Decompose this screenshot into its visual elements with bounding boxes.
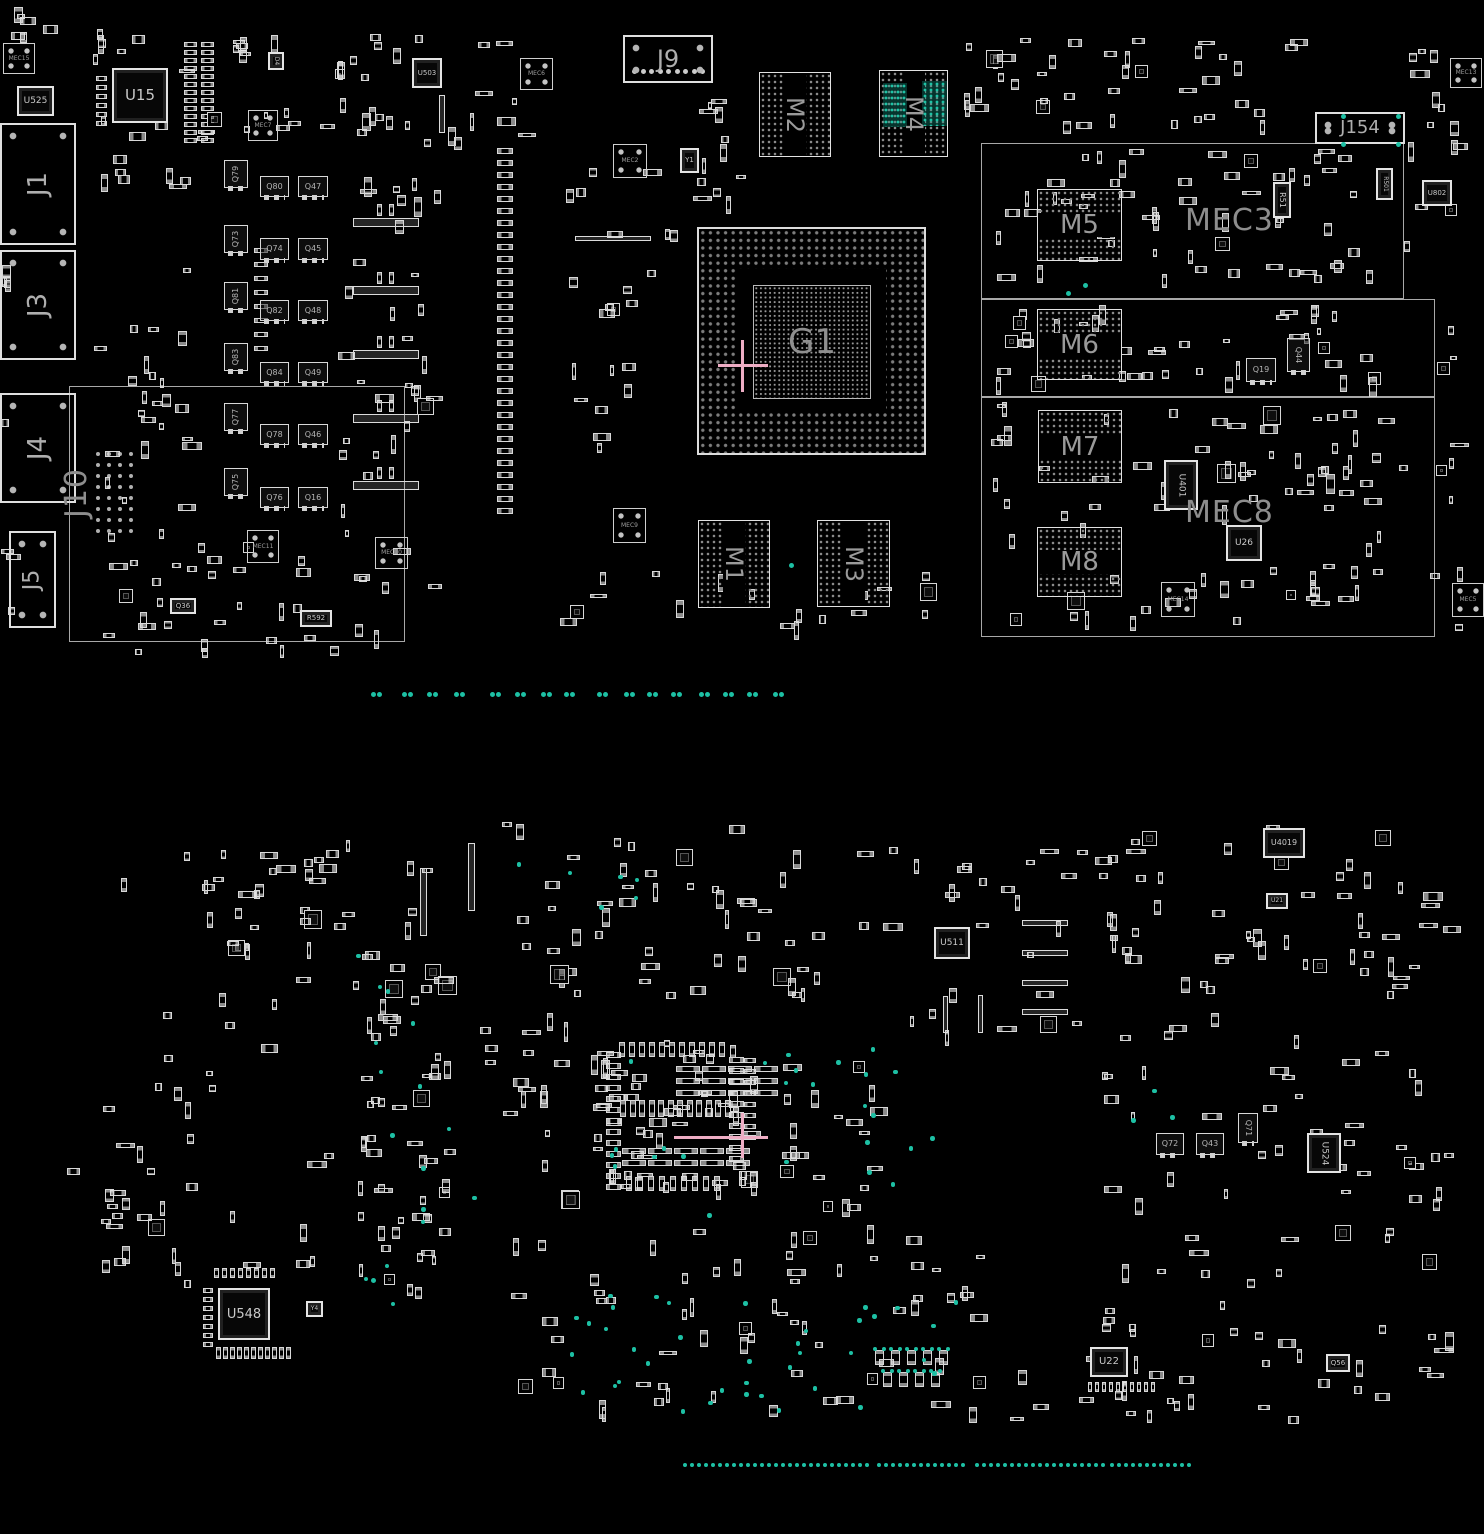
passive-component	[567, 855, 580, 859]
test-point	[767, 1463, 771, 1467]
transistor-Q81[interactable]: Q81	[224, 282, 248, 310]
passive-component	[214, 620, 226, 624]
passive-component	[1194, 116, 1202, 123]
passive-component	[250, 925, 259, 930]
passive-component	[1212, 910, 1225, 917]
passive-component	[213, 877, 224, 882]
passive-component	[227, 941, 240, 946]
via-dot	[129, 518, 133, 522]
component-label: Q84	[266, 369, 282, 377]
passive-component	[1348, 248, 1360, 257]
passive-component	[118, 175, 130, 184]
passive-component	[420, 1196, 427, 1205]
passive-component	[1169, 1025, 1187, 1032]
test-point	[630, 692, 635, 697]
test-point	[1080, 1463, 1084, 1467]
passive-component	[564, 1022, 568, 1042]
test-point	[890, 1369, 894, 1373]
passive-component	[607, 231, 623, 237]
component-label: M2	[783, 97, 807, 133]
passive-component	[566, 189, 574, 204]
passive-component	[590, 1274, 599, 1286]
passive-component	[1212, 418, 1228, 426]
pad-strip-pad	[184, 82, 197, 87]
passive-component	[330, 646, 339, 656]
transistor-Q48[interactable]: Q48	[298, 300, 328, 321]
bga-M2[interactable]: M2	[759, 72, 831, 157]
bga-M6[interactable]: M6	[1037, 309, 1122, 380]
passive-component	[867, 1373, 878, 1384]
bar-component	[468, 843, 475, 911]
bar-component	[1022, 920, 1068, 926]
test-point	[1045, 1463, 1049, 1467]
passive-component	[1314, 275, 1322, 283]
transistor-Q77[interactable]: Q77	[224, 403, 248, 431]
test-point	[646, 1361, 651, 1366]
passive-component	[162, 394, 171, 407]
passive-component	[701, 1091, 708, 1097]
passive-component	[712, 1180, 728, 1186]
passive-component	[233, 567, 247, 572]
passive-component	[269, 868, 277, 876]
passive-component	[1023, 339, 1032, 348]
component-label: Q80	[266, 183, 282, 191]
passive-component	[801, 988, 805, 1002]
passive-component	[837, 1264, 841, 1276]
passive-component	[363, 472, 373, 480]
passive-component	[359, 576, 367, 582]
transistor-Q44[interactable]: Q44	[1287, 338, 1310, 372]
test-point	[858, 1405, 863, 1410]
chip-Q56[interactable]: Q56	[1326, 1354, 1350, 1372]
passive-component	[380, 999, 386, 1016]
passive-component	[705, 1108, 713, 1117]
component-label: Q48	[305, 307, 321, 315]
passive-component	[726, 196, 732, 215]
pad-strip-pad	[497, 352, 513, 358]
passive-component	[105, 477, 109, 490]
pad-strip-pad	[497, 196, 513, 202]
passive-component	[207, 912, 213, 927]
module-MEC5[interactable]: MEC5	[1452, 583, 1484, 617]
bar-component	[1022, 1009, 1068, 1015]
transistor-Q73[interactable]: Q73	[224, 225, 248, 253]
passive-component	[714, 954, 722, 967]
passive-component	[1236, 361, 1241, 380]
test-point	[898, 1347, 902, 1351]
test-point	[1059, 1463, 1063, 1467]
passive-component	[670, 230, 678, 243]
pad-strip-pad	[744, 1124, 756, 1129]
test-point	[581, 1390, 586, 1395]
module-MEC13[interactable]: MEC13	[1450, 58, 1482, 88]
via-dot	[118, 507, 122, 511]
passive-component	[976, 923, 989, 928]
module-MEC7[interactable]: MEC7	[248, 110, 278, 141]
transistor-Q71[interactable]: Q71	[1238, 1113, 1258, 1143]
passive-component	[1313, 959, 1327, 973]
passive-component	[1224, 172, 1240, 179]
passive-component	[780, 1165, 794, 1179]
chip-U4019[interactable]: U4019	[1263, 828, 1305, 858]
via-dot	[129, 485, 133, 489]
bga-M4[interactable]: M4	[879, 70, 948, 157]
capacitor	[915, 1372, 924, 1387]
passive-component	[355, 624, 363, 637]
chip-U525[interactable]: U525	[17, 86, 54, 116]
passive-component	[1228, 269, 1240, 278]
passive-component	[1018, 1370, 1026, 1385]
passive-component	[713, 188, 721, 197]
test-point	[570, 692, 575, 697]
passive-component	[186, 1183, 198, 1190]
transistor-Q74[interactable]: Q74	[260, 238, 289, 260]
module-MEC2[interactable]: MEC2	[613, 144, 647, 178]
passive-component	[597, 443, 602, 454]
module-MEC15[interactable]: MEC15	[3, 43, 35, 74]
passive-component	[996, 231, 1002, 246]
transistor-Q79[interactable]: Q79	[224, 160, 248, 188]
pad-strip-pad	[203, 1324, 213, 1329]
passive-component	[1373, 569, 1384, 576]
test-point	[786, 1053, 791, 1058]
test-point	[975, 1463, 979, 1467]
test-point	[926, 1463, 930, 1467]
test-point	[871, 1113, 876, 1118]
passive-component	[1219, 54, 1227, 59]
passive-component	[1196, 368, 1203, 375]
passive-component	[997, 368, 1012, 375]
transistor-Q72[interactable]: Q72	[1156, 1133, 1184, 1155]
passive-component	[1318, 149, 1334, 154]
test-point	[938, 1369, 942, 1373]
connector-J1[interactable]: J1	[0, 123, 76, 245]
passive-component	[1235, 100, 1249, 108]
test-point	[1087, 1463, 1091, 1467]
pad-strip-pad	[497, 448, 513, 454]
module-MEC9[interactable]: MEC9	[613, 508, 646, 543]
test-point	[996, 1463, 1000, 1467]
chip-U15[interactable]: U15	[112, 68, 168, 123]
transistor-Q49[interactable]: Q49	[298, 362, 328, 383]
component-label: Q78	[266, 431, 282, 439]
transistor-Q45[interactable]: Q45	[298, 238, 328, 260]
passive-component	[1449, 496, 1453, 504]
test-point	[763, 1061, 768, 1066]
passive-component	[1294, 1035, 1299, 1049]
passive-component	[149, 372, 156, 380]
passive-component	[340, 98, 346, 113]
passive-component	[606, 1118, 622, 1127]
passive-component	[1301, 892, 1315, 898]
passive-component	[1110, 935, 1118, 940]
transistor-Q80[interactable]: Q80	[260, 176, 289, 197]
passive-component	[945, 892, 961, 899]
test-point	[813, 1386, 818, 1391]
chip-U22[interactable]: U22	[1090, 1347, 1128, 1377]
transistor-Q83[interactable]: Q83	[224, 343, 248, 371]
passive-component	[793, 850, 801, 869]
pad-strip-pad	[258, 1347, 263, 1359]
passive-component	[503, 1111, 518, 1116]
chip-U511[interactable]: U511	[934, 927, 970, 959]
passive-component	[345, 530, 349, 537]
pad-strip-pad	[203, 1288, 213, 1293]
passive-component	[589, 168, 598, 176]
passive-component	[296, 977, 311, 983]
passive-component	[184, 852, 190, 861]
test-point	[753, 692, 758, 697]
pad-strip-pad	[648, 1176, 654, 1191]
passive-component	[1375, 1393, 1389, 1400]
passive-component	[358, 1212, 363, 1220]
passive-component	[1115, 1391, 1122, 1400]
test-point	[746, 1463, 750, 1467]
passive-component	[163, 1012, 172, 1019]
passive-component	[1255, 1332, 1263, 1340]
passive-component	[652, 571, 660, 577]
component-label: MEC13	[1456, 70, 1477, 76]
transistor-Q84[interactable]: Q84	[260, 362, 289, 383]
passive-component	[135, 649, 143, 655]
capacitor	[939, 1350, 948, 1365]
module-MEC11[interactable]: MEC11	[247, 530, 279, 563]
bga-M3[interactable]: M3	[817, 520, 890, 607]
pad-strip-pad	[96, 94, 107, 99]
chip-R592[interactable]: R592	[300, 610, 332, 627]
test-point	[1187, 1463, 1191, 1467]
passive-component	[1322, 168, 1337, 173]
passive-component	[572, 363, 577, 380]
chip-Q36[interactable]: Q36	[170, 598, 196, 614]
chip-U21[interactable]: U21	[1266, 893, 1288, 909]
pad-strip-pad	[649, 1042, 655, 1057]
passive-component	[353, 259, 366, 266]
passive-component	[739, 1171, 747, 1179]
bar-component	[978, 995, 983, 1033]
passive-component	[554, 1060, 570, 1066]
via-dot	[118, 496, 122, 500]
bga-M5[interactable]: M5	[1037, 189, 1122, 261]
chip-R501[interactable]: R501	[1376, 168, 1393, 200]
test-point	[891, 1182, 896, 1187]
passive-component	[1409, 965, 1421, 969]
component-label: Q79	[232, 166, 240, 182]
test-point	[447, 1127, 452, 1132]
passive-component	[137, 1214, 152, 1221]
passive-component	[758, 909, 772, 913]
test-point	[744, 1381, 749, 1386]
chip-Y1[interactable]: Y1	[680, 148, 699, 173]
pad-strip-pad	[648, 1160, 672, 1166]
module-MEC6[interactable]: MEC6	[520, 58, 553, 90]
passive-component	[1133, 462, 1152, 470]
connector-J3[interactable]: J3	[0, 250, 76, 360]
passive-component	[1174, 1401, 1180, 1410]
test-point	[364, 1277, 369, 1282]
passive-component	[597, 1051, 614, 1056]
passive-component	[1438, 104, 1445, 112]
passive-component	[614, 838, 621, 847]
passive-component	[475, 91, 492, 96]
test-point	[603, 692, 608, 697]
pad-strip-pad	[203, 1297, 213, 1302]
connector-J5[interactable]: J5	[9, 531, 56, 628]
passive-component	[1387, 991, 1394, 999]
passive-component	[1378, 418, 1394, 423]
passive-component	[209, 1085, 216, 1092]
pad-strip-pad	[497, 304, 513, 310]
passive-component	[94, 346, 107, 351]
passive-component	[1341, 1190, 1351, 1194]
component-label: J3	[25, 293, 51, 317]
passive-component	[1103, 1317, 1115, 1324]
test-point	[905, 1347, 909, 1351]
transistor-Q75[interactable]: Q75	[224, 468, 248, 496]
passive-component	[119, 589, 133, 603]
test-point	[390, 1133, 395, 1138]
pad-strip-pad	[619, 1042, 625, 1057]
bga-M8[interactable]: M8	[1037, 527, 1122, 597]
via-dot	[129, 452, 133, 456]
passive-component	[1027, 952, 1035, 958]
passive-component	[1437, 362, 1450, 375]
passive-component	[142, 391, 146, 404]
connector-J154[interactable]: J154	[1315, 112, 1405, 144]
connector-J9[interactable]: J9	[623, 35, 713, 83]
passive-component	[296, 1260, 310, 1269]
passive-component	[523, 1050, 534, 1056]
pad-strip-pad	[203, 1333, 213, 1338]
passive-component	[148, 1219, 166, 1237]
pad-strip-pad	[1102, 1382, 1106, 1392]
passive-component	[1254, 109, 1265, 118]
passive-component	[422, 868, 432, 874]
transistor-Q43[interactable]: Q43	[1196, 1133, 1224, 1155]
passive-component	[1364, 498, 1382, 505]
inductor-pad	[377, 336, 382, 348]
component-label: MEC10	[381, 550, 402, 556]
pad-strip-pad	[184, 114, 197, 119]
passive-component	[1346, 859, 1353, 871]
chip-U802[interactable]: U802	[1422, 180, 1452, 206]
passive-component	[1009, 534, 1015, 549]
passive-component	[107, 1204, 117, 1209]
test-point	[690, 1463, 694, 1467]
passive-component	[1105, 1308, 1115, 1314]
transistor-Q76[interactable]: Q76	[260, 487, 289, 508]
chip-U26[interactable]: U26	[1226, 525, 1262, 561]
passive-component	[676, 600, 684, 618]
passive-component	[339, 450, 348, 459]
chip-U503[interactable]: U503	[412, 58, 442, 88]
chip-Y4[interactable]: Y4	[306, 1301, 323, 1317]
passive-component	[238, 891, 256, 898]
passive-component	[407, 1284, 413, 1296]
test-point	[427, 692, 432, 697]
component-label: Q72	[1162, 1140, 1178, 1148]
pad-strip-pad	[670, 1176, 676, 1191]
test-point	[922, 1369, 926, 1373]
via-dot	[118, 529, 122, 533]
module-MEC14[interactable]: MEC14	[1161, 582, 1195, 617]
passive-component	[1061, 873, 1078, 878]
pad-strip-pad	[1137, 1382, 1141, 1392]
passive-component	[569, 277, 578, 288]
passive-component	[609, 1094, 627, 1101]
passive-component	[1135, 1198, 1143, 1214]
transistor-Q19[interactable]: Q19	[1246, 358, 1276, 382]
pad-strip-pad	[497, 376, 513, 382]
transistor-Q16[interactable]: Q16	[298, 487, 328, 508]
passive-component	[1126, 849, 1146, 853]
passive-component	[1025, 191, 1030, 207]
passive-component	[1129, 149, 1144, 155]
passive-component	[637, 1173, 653, 1178]
pad-strip-pad	[639, 1100, 645, 1117]
passive-component	[103, 633, 115, 637]
module-MEC10[interactable]: MEC10	[375, 537, 408, 569]
test-point	[1341, 142, 1346, 147]
passive-component	[98, 39, 106, 49]
test-point	[744, 1392, 749, 1397]
pad-strip-pad	[700, 1160, 724, 1166]
passive-component	[593, 1147, 603, 1152]
bga-M7[interactable]: M7	[1038, 410, 1122, 483]
bar-component	[1022, 980, 1068, 986]
transistor-Q78[interactable]: Q78	[260, 424, 289, 445]
test-point	[704, 1463, 708, 1467]
passive-component	[367, 1135, 376, 1143]
passive-component	[367, 1017, 372, 1034]
bga-M1[interactable]: M1	[698, 520, 770, 608]
big-label-MEC8: MEC8	[1185, 498, 1274, 528]
passive-component	[570, 605, 584, 619]
pad-strip-pad	[497, 496, 513, 502]
test-point	[823, 1463, 827, 1467]
passive-component	[166, 168, 173, 184]
pad-strip-pad	[497, 412, 513, 418]
test-point	[777, 1408, 782, 1413]
transistor-Q46[interactable]: Q46	[298, 424, 328, 445]
chip-D4[interactable]: D4	[268, 52, 284, 70]
chip-R51[interactable]: R51	[1273, 182, 1291, 218]
chip-U524[interactable]: U524	[1307, 1133, 1341, 1173]
passive-component	[1015, 895, 1020, 911]
pad-strip-pad	[203, 1315, 213, 1320]
passive-component	[1344, 1140, 1355, 1146]
passive-component	[266, 637, 277, 644]
passive-component	[370, 34, 381, 41]
passive-component	[1393, 976, 1410, 981]
passive-component	[1010, 613, 1022, 625]
test-point	[587, 1321, 592, 1326]
passive-component	[929, 1009, 936, 1019]
passive-component	[1286, 590, 1296, 600]
test-point	[408, 692, 413, 697]
passive-component	[1040, 1016, 1057, 1033]
transistor-Q82[interactable]: Q82	[260, 300, 289, 321]
passive-component	[20, 32, 28, 43]
test-point	[982, 1463, 986, 1467]
passive-component	[448, 127, 456, 147]
passive-component	[485, 1060, 495, 1065]
transistor-Q47[interactable]: Q47	[298, 176, 328, 197]
passive-component	[1167, 1172, 1174, 1187]
passive-component	[1310, 580, 1316, 596]
inductor-pad	[389, 467, 394, 479]
chip-U548[interactable]: U548	[218, 1288, 270, 1340]
